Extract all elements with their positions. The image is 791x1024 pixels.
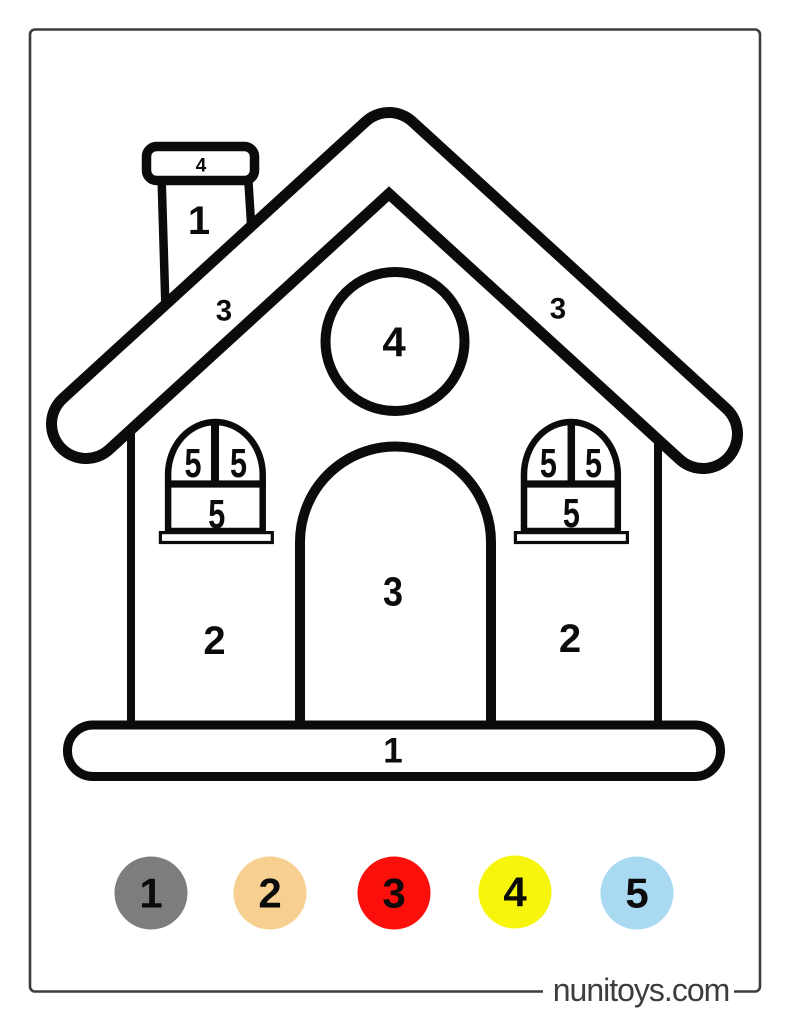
svg-text:5: 5 bbox=[208, 491, 225, 537]
svg-text:4: 4 bbox=[196, 156, 207, 177]
svg-text:5: 5 bbox=[230, 440, 247, 486]
svg-text:1: 1 bbox=[383, 732, 402, 771]
svg-text:5: 5 bbox=[185, 440, 202, 486]
svg-text:3: 3 bbox=[383, 569, 403, 615]
svg-text:4: 4 bbox=[503, 869, 527, 916]
svg-text:5: 5 bbox=[625, 870, 648, 917]
svg-text:1: 1 bbox=[139, 870, 162, 917]
svg-text:5: 5 bbox=[585, 440, 602, 486]
svg-text:2: 2 bbox=[258, 870, 281, 917]
svg-text:3: 3 bbox=[382, 870, 405, 917]
svg-text:nunitoys.com: nunitoys.com bbox=[553, 972, 730, 1008]
svg-text:2: 2 bbox=[559, 617, 581, 661]
svg-text:3: 3 bbox=[216, 295, 232, 328]
svg-text:3: 3 bbox=[550, 293, 566, 326]
svg-text:2: 2 bbox=[203, 619, 225, 663]
svg-text:1: 1 bbox=[188, 199, 210, 243]
svg-text:5: 5 bbox=[563, 490, 580, 536]
svg-text:4: 4 bbox=[382, 319, 406, 366]
svg-text:5: 5 bbox=[540, 440, 557, 486]
